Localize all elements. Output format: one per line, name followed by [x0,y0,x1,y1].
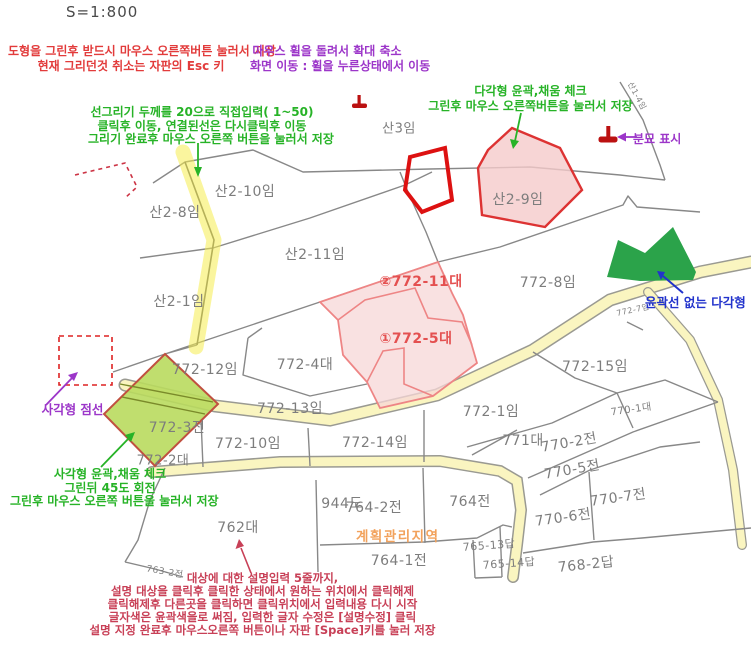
parcel-label-산3임: 산3임 [382,118,416,137]
parcel-label-772-13임: 772-13임 [257,398,323,418]
dashed-rectangle[interactable] [59,336,112,385]
instruction-line: 선그리기 두께를 20으로 직접입력( 1~50) [88,106,316,120]
zoning-area-label: 계획관리지역 [356,525,440,545]
instruction-description-input: 대상에 대한 설명입력 5줄까지, 설명 대상을 클릭후 클릭한 상태에서 원하… [70,572,455,637]
instruction-line: 현재 그리던것 취소는 자판의 Esc 키 [8,59,254,74]
parcel-label-764전: 764전 [449,491,491,511]
no-outline-green-polygon[interactable] [607,227,696,281]
instruction-line: 클릭후 이동, 연결된선은 다시클릭후 이동 [88,120,316,134]
instruction-line-drawing: 선그리기 두께를 20으로 직접입력( 1~50) 클릭후 이동, 연결된선은 … [88,106,316,147]
parcel-label-772-1임: 772-1임 [463,401,520,421]
map-tutorial-canvas: 산3임산2-10임산2-8임산2-11임산2-1임산2-9임산1-4임772-8… [0,0,751,652]
parcel-label-772-14임: 772-14임 [342,432,408,452]
parcel-label-산2-11임: 산2-11임 [285,244,346,264]
map-scale-label: S=1:800 [66,3,138,21]
instruction-draw-save: 도형을 그린후 받드시 마우스 오른쪽버튼 눌러서 저장 현재 그리던것 취소는… [8,44,254,74]
parcel-label-①772-5대: ①772-5대 [379,328,452,348]
parcel-label-772-12임: 772-12임 [172,359,238,379]
parcel-label-771대: 771대 [502,430,544,450]
instruction-line: 다각형 윤곽,채움 체크 [428,84,633,99]
instruction-line: 그린후 마우스 오른쪽버튼을 눌러서 저장 [428,99,633,114]
instruction-line: 글자색은 윤곽색을로 써짐, 입력한 글자 수정은 [설명수정] 클릭 [70,611,455,624]
road-right [648,292,742,545]
green-arrow-to-square [101,432,135,467]
instruction-rectangle-drawing: 사각형 윤곽,채움 체크 그린뒤 45도 회전 그린후 마우스 오른쪽 버튼을 … [10,468,210,509]
instruction-line: 사각형 윤곽,채움 체크 [10,468,210,482]
instruction-line: 그린뒤 45도 회전 [10,482,210,496]
parcel-label-772-8임: 772-8임 [520,272,577,292]
instruction-line: 설명 지정 완료후 마우스오른쪽 버튼이나 자판 [Space]키를 눌러 저장 [70,624,455,637]
instruction-line: 도형을 그린후 받드시 마우스 오른쪽버튼 눌러서 저장 [8,44,254,59]
grave-marker-label: 분묘 표시 [633,130,681,147]
parcel-label-762대: 762대 [217,517,259,537]
dashed-rectangle-label: 사각형 점선 [25,399,120,418]
crimson-arrow-to-762 [236,539,252,573]
instruction-line: 그린후 마우스 오른쪽 버튼을 눌러서 저장 [10,495,210,509]
parcel-label-764-2전: 764-2전 [346,497,403,517]
parcel-label-772-3전: 772-3전 [149,417,206,437]
parcel-label-772-2대: 772-2대 [137,450,190,469]
parcel-label-②772-11대: ②772-11대 [379,271,462,291]
instruction-line: 대상에 대한 설명입력 5줄까지, [70,572,455,585]
filled-polygon-san2-9[interactable] [478,128,582,227]
parcel-label-772-4대: 772-4대 [277,354,334,374]
instruction-mouse-wheel: 마우스 휠을 돌려서 확대 축소 화면 이동 : 휠을 누른상태에서 이동 [250,44,404,74]
instruction-polygon-drawing: 다각형 윤곽,채움 체크 그린후 마우스 오른쪽버튼을 눌러서 저장 [428,84,633,113]
road-right-border [648,292,742,545]
parcel-label-772-10임: 772-10임 [215,433,281,453]
no-outline-polygon-label: 윤곽선 없는 다각형 [645,292,746,311]
parcel-label-772-15임: 772-15임 [562,356,628,376]
instruction-line: 마우스 휠을 돌려서 확대 축소 [250,44,404,59]
parcel-label-764-1전: 764-1전 [371,550,428,570]
dashed-polyline[interactable] [75,163,137,198]
grave-marker-icon [599,126,618,143]
instruction-line: 그리기 완료후 마우스 오른쪽 버튼을 눌러서 저장 [88,133,316,147]
parcel-label-산2-1임: 산2-1임 [153,291,204,311]
instruction-line: 설명 대상을 클릭후 클릭한 상태에서 원하는 위치에서 클릭해제 [70,585,455,598]
parcel-label-산2-9임: 산2-9임 [492,189,543,209]
parcel-label-산2-8임: 산2-8임 [149,202,200,222]
parcel-label-산2-10임: 산2-10임 [215,181,276,201]
instruction-line: 화면 이동 : 휠을 누른상태에서 이동 [250,59,404,74]
grave-marker-icon [352,95,367,108]
instruction-line: 클릭해제후 다른곳을 클릭하면 클릭위치에서 입력내용 다시 시작 [70,598,455,611]
